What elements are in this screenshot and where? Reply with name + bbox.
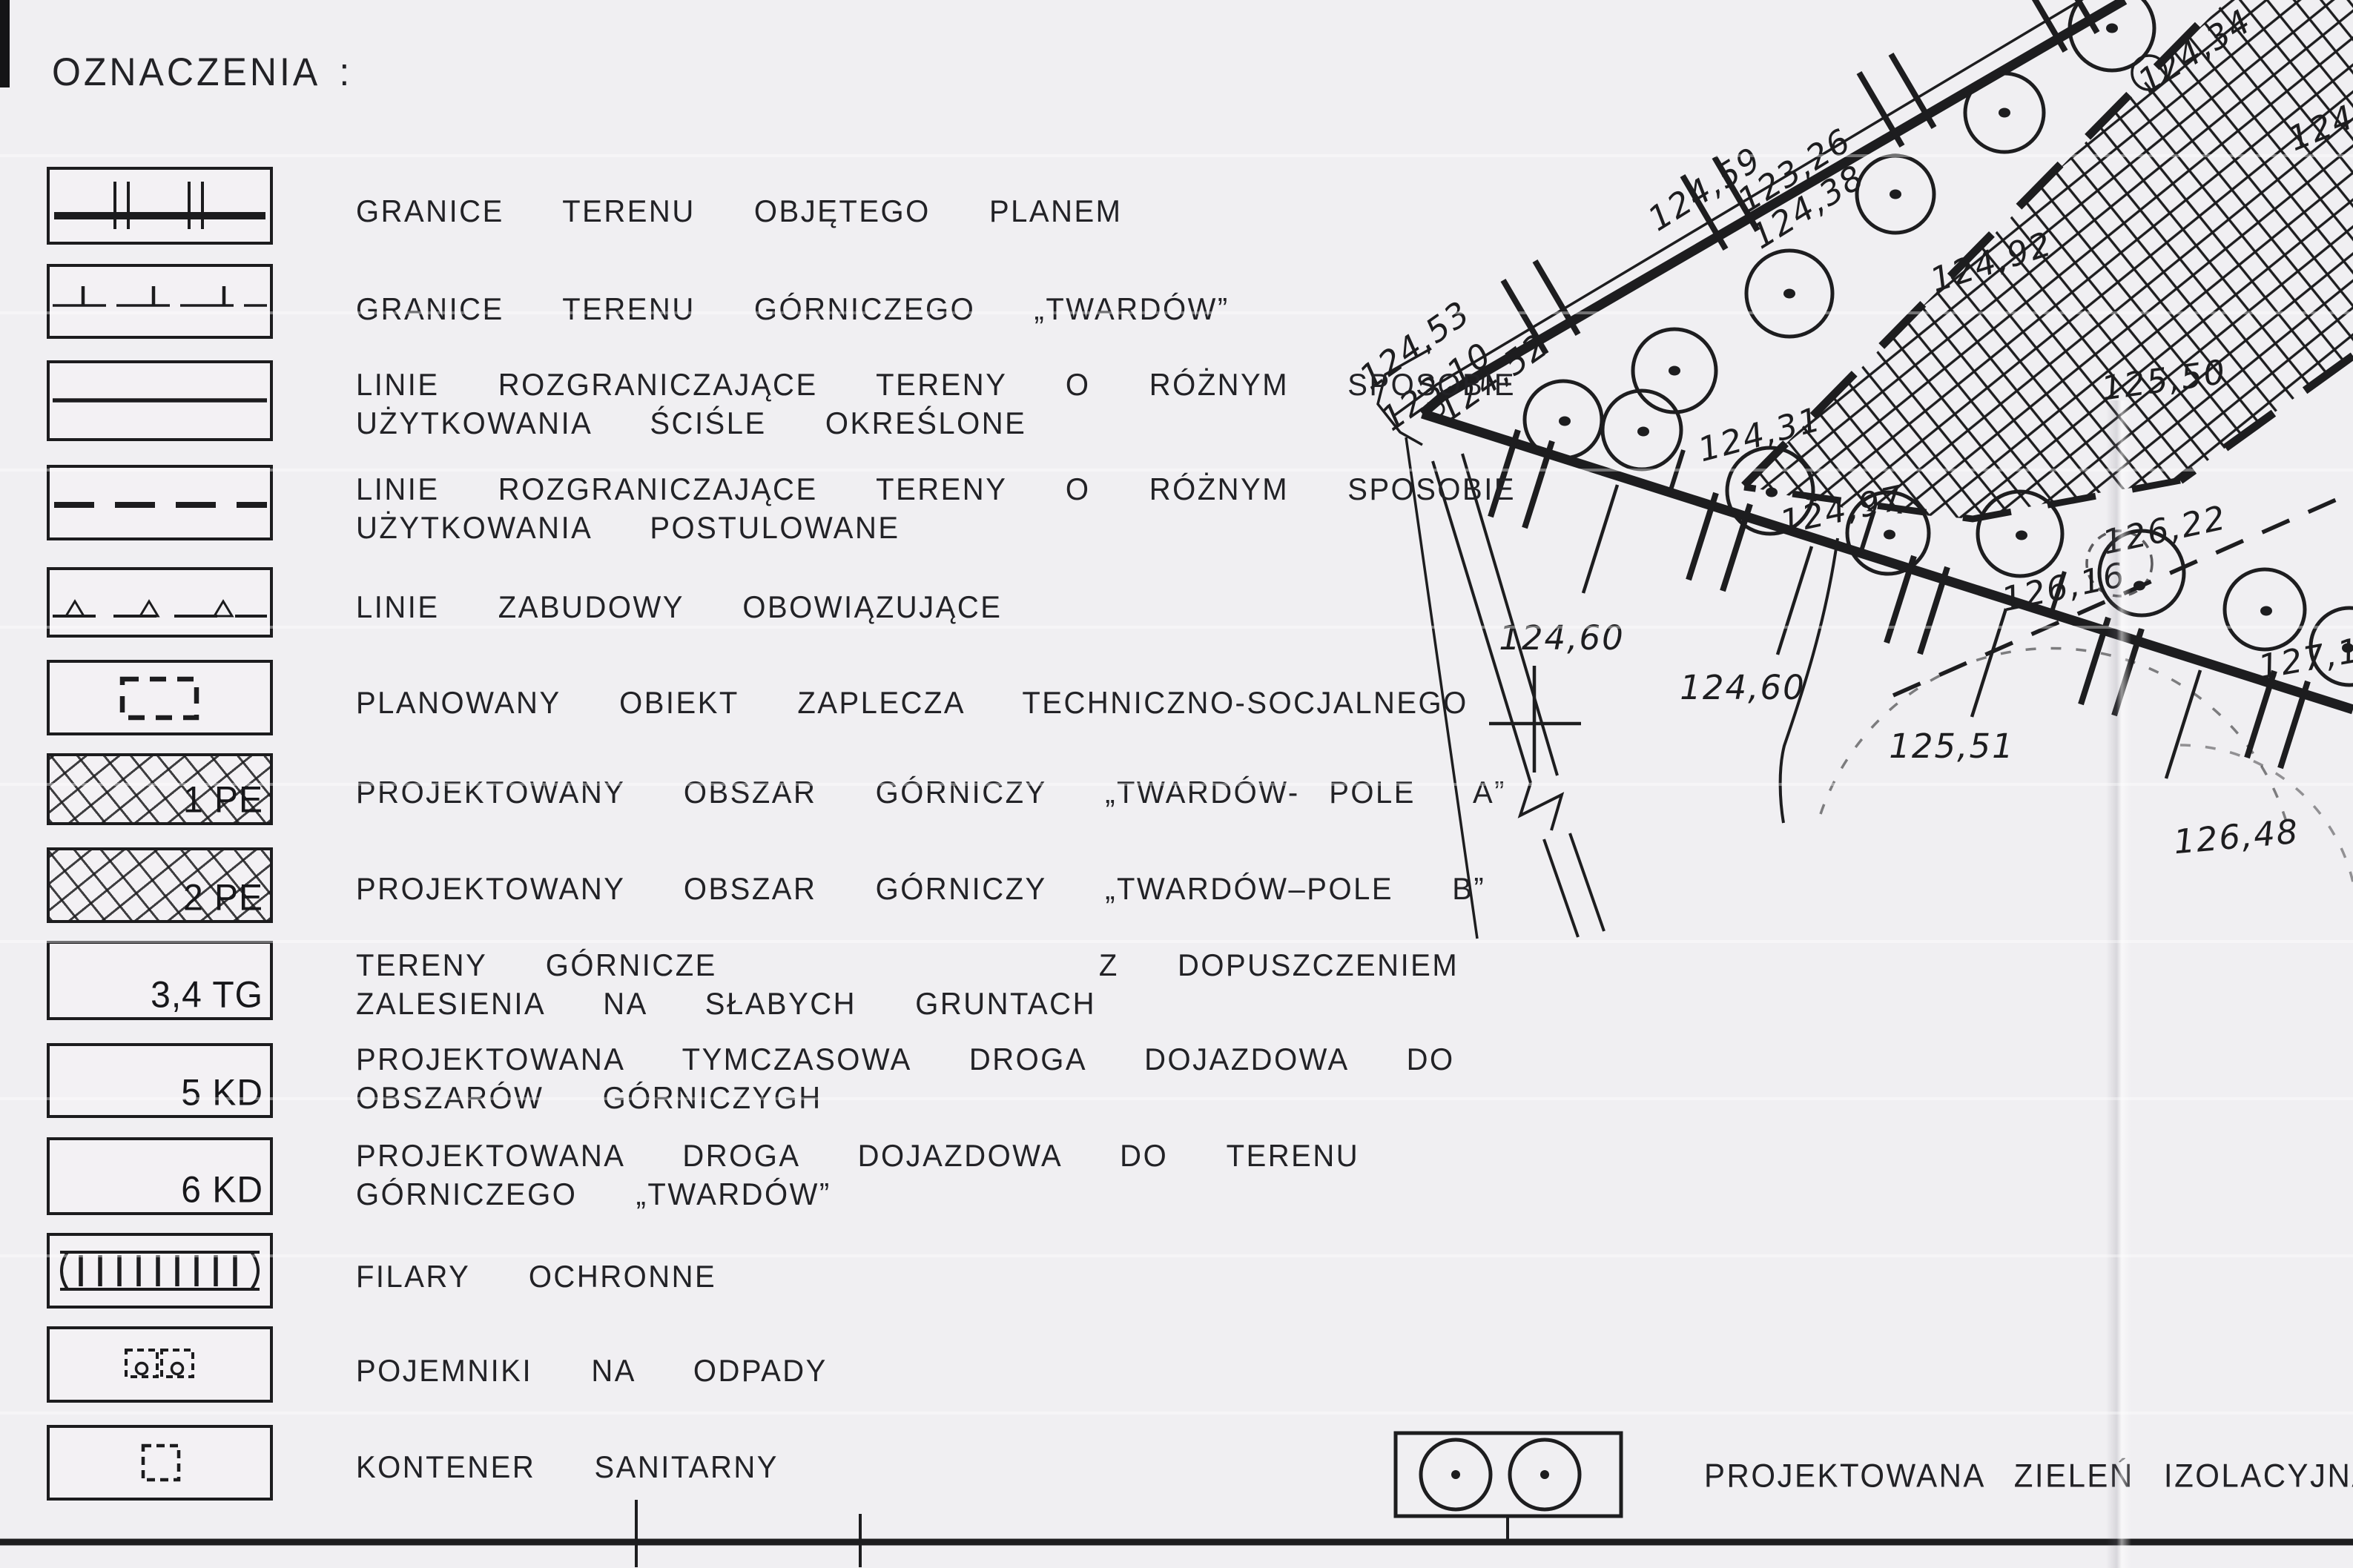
legend-symbol-mining-area-1pe: 1 PE	[47, 753, 273, 825]
legend-symbol-mining-area-2pe: 2 PE	[47, 847, 273, 923]
elevation-label: 124,60	[1499, 618, 1624, 658]
elevation-label: 126,22	[2099, 497, 2230, 562]
area-code: 5 KD	[181, 1071, 263, 1114]
area-code: 2 PE	[183, 876, 263, 919]
elevation-label: 124,60	[1680, 668, 1805, 707]
legend-label: POJEMNIKI NA ODPADY	[356, 1351, 828, 1389]
legend-label: PROJEKTOWANY OBSZAR GÓRNICZY „TWARDÓW–PO…	[356, 869, 1485, 907]
legend-symbol-tg-area: 3,4 TG	[47, 941, 273, 1020]
legend-symbol-sanitary-container	[47, 1425, 273, 1501]
legend-label: LINIE ZABUDOWY OBOWIĄZUJĄCE	[356, 587, 1002, 626]
area-code: 6 KD	[181, 1168, 263, 1211]
survey-cross	[1489, 666, 1581, 773]
legend-label: LINIE ROZGRANICZAJĄCE TERENY O RÓŻNYM SP…	[356, 469, 1516, 546]
legend-symbol-6kd-road: 6 KD	[47, 1137, 273, 1215]
legend-label: GRANICE TERENU GÓRNICZEGO „TWARDÓW”	[356, 289, 1230, 328]
legend-symbol-building-line	[47, 567, 273, 638]
legend-symbol-5kd-road: 5 KD	[47, 1043, 273, 1118]
road-break-symbol	[1520, 783, 1562, 830]
greenery-legend-dots	[1451, 1470, 1549, 1479]
legend-symbol-dividing-line-postulated	[47, 465, 273, 540]
legend-label: KONTENER SANITARNY	[356, 1447, 779, 1486]
elevation-label: 125,51	[1889, 727, 2014, 766]
legend-label: PROJEKTOWANA DROGA DOJAZDOWA DO TERENU G…	[356, 1136, 1359, 1213]
legend-symbol-planned-facility	[47, 660, 273, 735]
legend-label: TERENY GÓRNICZE Z DOPUSZCZENIEM ZALESIEN…	[356, 945, 1459, 1022]
legend-label: PLANOWANY OBIEKT ZAPLECZA TECHNICZNO-SOC…	[356, 683, 1468, 721]
legend-symbol-dividing-line-strict	[47, 360, 273, 441]
greenery-legend-label: PROJEKTOWANA ZIELEŃ IZOLACYJNA	[1704, 1458, 2353, 1495]
elevation-label: 127,15	[2255, 626, 2353, 687]
legend-label: FILARY OCHRONNE	[356, 1257, 716, 1295]
legend-label: GRANICE TERENU OBJĘTEGO PLANEM	[356, 191, 1122, 230]
legend-symbol-plan-boundary	[47, 167, 273, 245]
area-code: 3,4 TG	[151, 973, 263, 1016]
scanned-plan-legend-sheet: 124,53 123,10 124,52 124,59 123,26 124,3…	[0, 0, 2353, 1568]
legend-title: OZNACZENIA :	[52, 49, 352, 94]
legend-label: PROJEKTOWANA TYMCZASOWA DROGA DOJAZDOWA …	[356, 1039, 1455, 1117]
legend-symbol-mining-boundary	[47, 264, 273, 339]
greenery-legend-symbol	[1396, 1433, 1621, 1541]
elevation-label: 126,48	[2172, 812, 2300, 862]
scan-edge-artifact	[0, 0, 10, 87]
legend-symbol-waste-containers	[47, 1326, 273, 1403]
elevation-label: 126,16	[1998, 555, 2129, 619]
legend-label: LINIE ROZGRANICZAJĄCE TERENY O RÓŻNYM SP…	[356, 365, 1516, 442]
legend-symbol-protective-pillars	[47, 1233, 273, 1309]
area-code: 1 PE	[183, 778, 263, 821]
legend-label: PROJEKTOWANY OBSZAR GÓRNICZY „TWARDÓW- P…	[356, 773, 1506, 811]
